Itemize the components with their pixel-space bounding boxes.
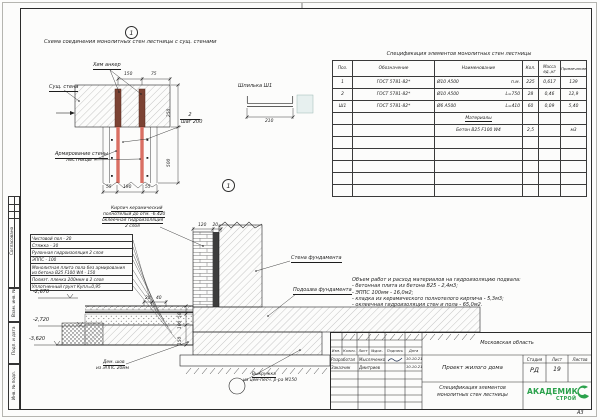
title-block-col-kolich: Колич. [342, 349, 357, 353]
dim-250: 250 [167, 109, 172, 117]
spec-row1-mass: 0,617 [539, 77, 561, 89]
spec-empty-row [333, 149, 587, 161]
spec-row2-length: L=750 [505, 92, 520, 97]
floor-layer-5-line1: Монолитная плита пола без армирования [32, 265, 131, 270]
title-block-col-list: Лист [357, 349, 369, 353]
spec-row2-name-text: Ø10 А500 [437, 92, 459, 97]
rebar-step-label: шаг 200 [181, 120, 202, 126]
floor-layer-4: ЭППС - 100 [31, 257, 132, 264]
note-line-4: - оклеечная гидроизоляция стен и пола - … [352, 302, 542, 308]
floor-layer-5-line2: из бетона В25 F100 W4 - 150 [32, 270, 131, 275]
spec-row3-pos: Ш1 [333, 101, 353, 113]
stamp-label-podp: Подп. и дата [11, 326, 16, 355]
dim-100-layers: 100 [178, 321, 183, 329]
spec-row1-name: Ø10 А500п.м. [435, 77, 523, 89]
fillet-label-line2: из цем-песч. р-ра М150 [243, 378, 297, 383]
spec-row3-note: 5,40 [561, 101, 587, 113]
spec-empty-row [333, 137, 587, 149]
dim-50-layers: 50 [178, 312, 183, 318]
title-block-role-1: Разработал [331, 357, 355, 362]
dim-210: 210 [265, 119, 273, 124]
floor-layer-6: Полиэт. пленка 200мкм в 2 слоя [31, 276, 132, 283]
dim-55-right: 55 [145, 185, 151, 190]
detail-marker-1: 1 [125, 26, 138, 39]
spec-header-doc: Обозначение [353, 61, 435, 77]
spec-row3-length: L=410 [505, 104, 520, 109]
title-block-sheet-label: Лист [546, 357, 568, 362]
logo-text-main: АКАДЕМИК [527, 387, 578, 396]
spec-row2-name: Ø10 А500L=750 [435, 89, 523, 101]
title-block-doc-title-line1: Спецификация элементов [422, 386, 523, 391]
spec-row1-note: 139 [561, 77, 587, 89]
dim-20-floor: 20 [145, 296, 151, 301]
title-block-name-2: Дмитриев [359, 365, 380, 370]
footing-label: Подошва фундамента [293, 288, 352, 295]
spec-row2-qty: 28 [523, 89, 539, 101]
elevation-2720: -2,720 [33, 318, 49, 324]
reinforcement-label-line2: лестницы [66, 158, 92, 164]
spec-header-pos: Поз. [333, 61, 353, 77]
spec-header-mass-line2: ед.,кг [539, 69, 560, 74]
elevation-2670: -2,670 [33, 290, 49, 296]
stamp-box-line [8, 218, 20, 219]
detail1-title: Схема соединения монолитных стен лестниц… [44, 40, 217, 46]
stamp-label-vzam: Взам. инв. № [11, 289, 16, 317]
spec-row-1: 1 ГОСТ 5781-82* Ø10 А500п.м. 225 0,617 1… [333, 77, 587, 89]
title-block-col-date: Дата [405, 349, 422, 353]
floor-layer-3: Рулонная гидроизоляция 2 слоя [31, 249, 132, 256]
spec-table-title: Спецификация элементов монолитных стен л… [332, 52, 586, 58]
dim-40-floor: 40 [156, 296, 162, 301]
existing-wall-label: Сущ. стена [49, 85, 78, 92]
title-block-col-doc: №док. [369, 349, 385, 353]
spec-materials-header-text: Материалы [465, 116, 491, 122]
floor-layer-5: Монолитная плита пола без армированияиз … [31, 264, 132, 276]
spec-materials-header-row: Материалы [333, 113, 587, 125]
scope-notes: Объем работ и расход материалов на гидро… [352, 277, 542, 308]
detail-marker-1-number: 1 [129, 29, 133, 37]
dim-120-brick: 120 [198, 223, 206, 228]
title-block-stage-label: Стадия [523, 357, 546, 362]
joint-label-line2: из ЭППС 20мм [96, 366, 129, 371]
spec-empty-row [333, 185, 587, 197]
title-block-col-izm: Изм. [330, 349, 342, 353]
spec-row2-pos: 2 [333, 89, 353, 101]
title-block-stage-value: РД [523, 366, 546, 374]
title-block-role-2: Заказчик [331, 365, 350, 370]
drawing-sheet: 1 1 Схема соединения монолитных стен лес… [0, 0, 600, 420]
floor-layer-2: Стяжка - 30 [31, 242, 132, 249]
logo-text-sub: СТРОЙ [556, 397, 576, 402]
spec-materials-header: Материалы [435, 113, 523, 125]
spec-header-qty: Кол. [523, 61, 539, 77]
spec-header-row: Поз. Обозначение Наименование Кол. Масса… [333, 61, 587, 77]
akademik-logo-icon [575, 384, 591, 402]
spec-materials-name: Бетон В25 F100 W4 [435, 125, 523, 137]
spec-row3-qty: 60 [523, 101, 539, 113]
spec-row1-pos: 1 [333, 77, 353, 89]
spec-header-name: Наименование [435, 61, 523, 77]
title-block-date-1: 10.10.21 [406, 357, 422, 361]
spec-empty-row [333, 161, 587, 173]
title-block-sheets-label: Листов [568, 357, 592, 362]
spec-row-3: Ш1 ГОСТ 5781-82* Ø6 А500L=410 60 0,09 5,… [333, 101, 587, 113]
spec-row-2: 2 ГОСТ 5781-82* Ø10 А500L=750 28 0,46 12… [333, 89, 587, 101]
title-block-col-sign: Подпись [385, 349, 405, 353]
spec-row2-doc: ГОСТ 5781-82* [353, 89, 435, 101]
stamp-box-line [8, 211, 20, 212]
title-block-region: Московская область [422, 340, 592, 346]
spec-materials-note: м3 [561, 125, 587, 137]
brick-note-line4: 2 слоя [125, 224, 140, 229]
detail-marker-2: 1 [222, 179, 235, 192]
elevation-3620: -3,620 [29, 337, 45, 343]
dim-20-strip: 20 [213, 223, 219, 228]
spec-header-mass: Массаед.,кг [539, 61, 561, 77]
spec-empty-row [333, 173, 587, 185]
spec-row1-name-text: Ø10 А500 [437, 80, 459, 85]
spec-row3-name: Ø6 А500L=410 [435, 101, 523, 113]
floor-layer-1: Чистовой пол - 20 [31, 235, 132, 242]
foundation-wall-label: Стена фундамента [291, 256, 342, 263]
stamp-box-line [8, 204, 20, 205]
spec-row1-doc: ГОСТ 5781-82* [353, 77, 435, 89]
spec-row1-qty: 225 [523, 77, 539, 89]
title-block-sheet-number: 19 [546, 366, 568, 373]
stamp-box-divider [14, 196, 15, 288]
dim-500: 500 [167, 159, 172, 167]
floor-layers-list: Чистовой пол - 20 Стяжка - 30 Рулонная г… [30, 234, 133, 291]
dim-150-slab: 150 [178, 337, 183, 345]
title-block-date-2: 10.10.21 [406, 365, 422, 369]
title-block-doc-title-line2: монолитных стен лестницы [422, 393, 523, 398]
dim-190: 190 [123, 185, 131, 190]
dim-75: 75 [151, 72, 157, 77]
spec-row3-doc: ГОСТ 5781-82* [353, 101, 435, 113]
spec-materials-qty: 2,5 [523, 125, 539, 137]
spec-row3-mass: 0,09 [539, 101, 561, 113]
stamp-label-inv: Инв. № подл. [11, 371, 16, 400]
spec-row2-mass: 0,46 [539, 89, 561, 101]
spec-materials-row: Бетон В25 F100 W4 2,5 м3 [333, 125, 587, 137]
spec-header-note: Примечание [561, 61, 587, 77]
spec-table: Поз. Обозначение Наименование Кол. Масса… [332, 60, 587, 197]
stamp-label-soglasovano: Согласовано [9, 227, 14, 255]
detail-marker-2-number: 1 [226, 182, 230, 190]
dim-55-left: 55 [106, 185, 112, 190]
chem-anchor-label: Хим анкер [93, 63, 121, 70]
spec-row2-note: 12,9 [561, 89, 587, 101]
sheet-format-label: А3 [577, 411, 584, 417]
stud-title: Шпилька Ш1 [238, 84, 272, 90]
dim-150: 150 [124, 72, 132, 77]
spec-row3-name-text: Ø6 А500 [437, 104, 456, 109]
title-block-project: Проект жилого дома [422, 365, 523, 371]
spec-row1-length: п.м. [511, 80, 520, 85]
title-block-name-1: Мысляченко [359, 357, 385, 362]
